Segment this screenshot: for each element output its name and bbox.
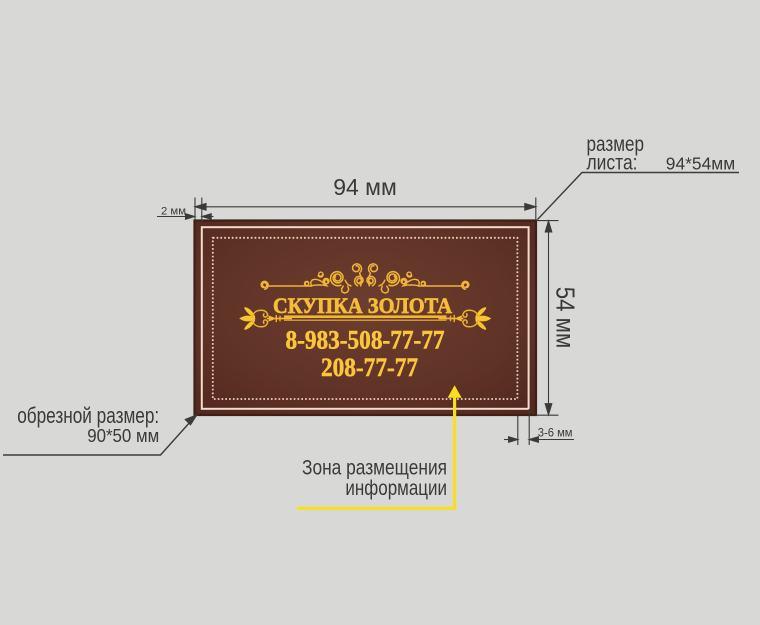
svg-text:листа:: листа:: [587, 151, 638, 175]
svg-text:54 мм: 54 мм: [551, 287, 581, 349]
svg-text:обрезной размер:: обрезной размер:: [17, 403, 159, 428]
svg-text:2 мм: 2 мм: [161, 205, 186, 217]
svg-text:3-6 мм: 3-6 мм: [538, 426, 573, 440]
svg-text:СКУПКА ЗОЛОТА: СКУПКА ЗОЛОТА: [273, 293, 453, 318]
svg-text:8-983-508-77-77: 8-983-508-77-77: [286, 326, 445, 355]
svg-text:90*50 мм: 90*50 мм: [87, 426, 159, 446]
svg-text:208-77-77: 208-77-77: [321, 353, 418, 382]
svg-text:информации: информации: [345, 477, 447, 500]
svg-text:94 мм: 94 мм: [333, 174, 397, 200]
svg-text:94*54мм: 94*54мм: [666, 154, 735, 174]
